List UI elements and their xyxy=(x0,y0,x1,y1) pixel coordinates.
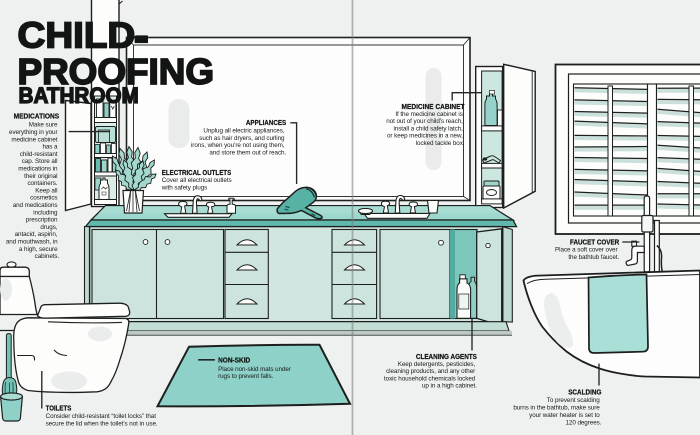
svg-text:FAUCET COVER: FAUCET COVER xyxy=(570,239,619,246)
svg-text:TOILETS: TOILETS xyxy=(46,405,72,412)
svg-text:APPLIANCES: APPLIANCES xyxy=(246,120,287,127)
svg-text:MEDICATIONS: MEDICATIONS xyxy=(14,114,60,121)
svg-text:Consider child-resistant “toil: Consider child-resistant “toilet locks” … xyxy=(46,413,158,427)
svg-text:CHILD-: CHILD- xyxy=(18,15,149,56)
svg-text:NON-SKID: NON-SKID xyxy=(218,357,250,364)
svg-text:ELECTRICAL OUTLETS: ELECTRICAL OUTLETS xyxy=(162,170,232,177)
svg-text:BATHROOM: BATHROOM xyxy=(19,83,139,108)
svg-text:SCALDING: SCALDING xyxy=(568,390,602,397)
svg-text:CLEANING AGENTS: CLEANING AGENTS xyxy=(416,354,477,361)
